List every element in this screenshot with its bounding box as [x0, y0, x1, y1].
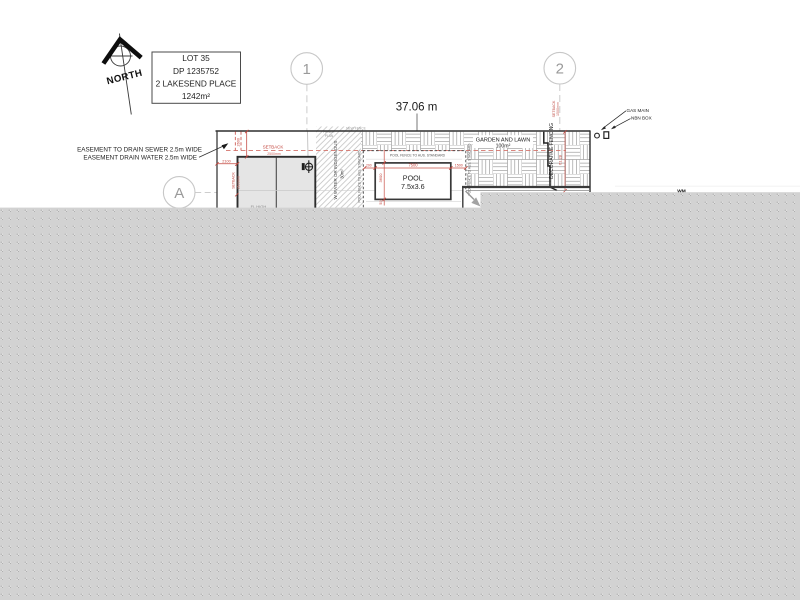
svg-text:1500mm: 1500mm: [556, 102, 560, 116]
svg-text:DP 1235752: DP 1235752: [173, 66, 219, 76]
svg-text:61.28: 61.28: [558, 154, 563, 165]
svg-text:GAS MAIN: GAS MAIN: [627, 108, 649, 113]
svg-text:POOL FENCE TO AUS. STANDARD: POOL FENCE TO AUS. STANDARD: [357, 150, 361, 203]
svg-text:37.06 m: 37.06 m: [396, 102, 438, 114]
svg-text:LOT 35: LOT 35: [182, 53, 210, 63]
svg-text:2: 2: [556, 61, 564, 78]
svg-text:EASEMENT DRAIN WATER 2.5m WIDE: EASEMENT DRAIN WATER 2.5m WIDE: [83, 155, 197, 162]
svg-text:2500mm: 2500mm: [237, 176, 241, 189]
svg-text:NEW FENCE: NEW FENCE: [346, 126, 367, 130]
svg-text:POOL: POOL: [403, 173, 423, 182]
svg-text:2600: 2600: [237, 138, 241, 146]
svg-text:DECORATIVE FENCING: DECORATIVE FENCING: [549, 123, 555, 179]
svg-text:7.5x3.6: 7.5x3.6: [401, 182, 425, 191]
svg-text:SETBACK: SETBACK: [232, 172, 236, 189]
svg-text:EASEMENT TO DRAIN SEWER 2.5m W: EASEMENT TO DRAIN SEWER 2.5m WIDE: [77, 146, 202, 153]
svg-text:1500: 1500: [455, 163, 463, 167]
svg-text:100m²: 100m²: [496, 143, 511, 149]
svg-text:30m²: 30m²: [339, 169, 344, 179]
svg-text:500: 500: [379, 199, 383, 205]
svg-text:2 LAKESEND PLACE: 2 LAKESEND PLACE: [156, 79, 237, 89]
svg-text:7500: 7500: [408, 163, 418, 168]
svg-text:2500mm: 2500mm: [267, 152, 281, 156]
svg-text:A: A: [174, 185, 184, 202]
svg-text:1242m²: 1242m²: [182, 91, 210, 101]
svg-text:2100: 2100: [222, 160, 230, 164]
svg-text:NBN BOX: NBN BOX: [631, 115, 652, 120]
svg-text:PLAN: PLAN: [325, 134, 334, 138]
svg-text:1: 1: [303, 61, 311, 78]
svg-text:SETBACK: SETBACK: [263, 145, 284, 150]
svg-text:200: 200: [366, 163, 372, 167]
svg-text:POOL FENCE TO AUS. STANDARD: POOL FENCE TO AUS. STANDARD: [390, 153, 446, 157]
svg-text:3600: 3600: [378, 173, 383, 183]
